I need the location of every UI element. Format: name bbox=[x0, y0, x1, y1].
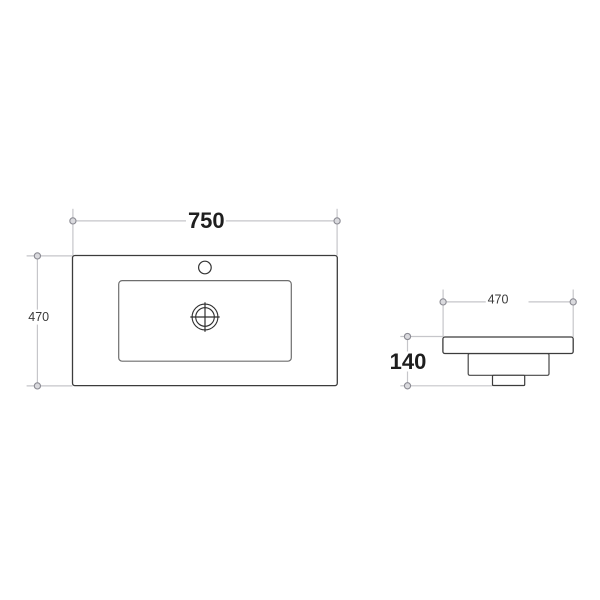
svg-text:470: 470 bbox=[488, 292, 509, 306]
svg-text:750: 750 bbox=[188, 208, 225, 233]
svg-text:470: 470 bbox=[28, 310, 49, 324]
svg-text:140: 140 bbox=[390, 349, 427, 374]
